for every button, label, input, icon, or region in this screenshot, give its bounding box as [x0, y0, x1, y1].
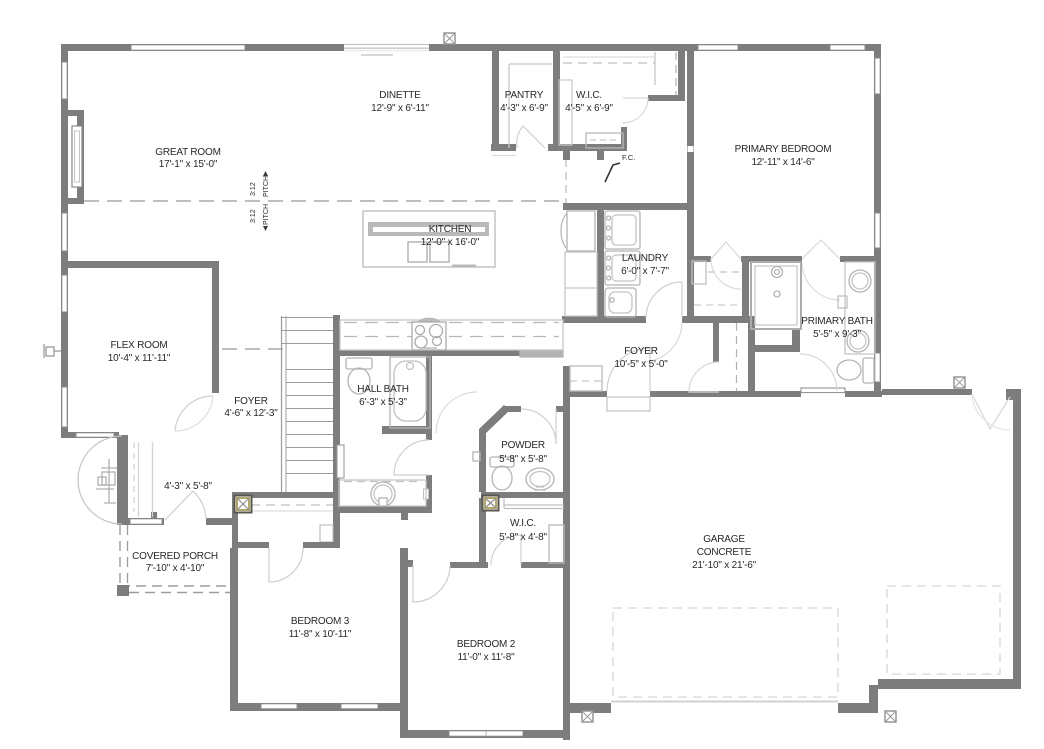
svg-text:10'-4" x 11'-11": 10'-4" x 11'-11" — [108, 353, 171, 364]
svg-text:4'-6" x 12'-3": 4'-6" x 12'-3" — [224, 408, 278, 419]
svg-text:12'-0" x 16'-0": 12'-0" x 16'-0" — [421, 237, 480, 248]
svg-text:10'-5" x 5'-0": 10'-5" x 5'-0" — [614, 359, 668, 370]
svg-text:PRIMARY BEDROOM: PRIMARY BEDROOM — [735, 144, 832, 155]
svg-text:F.C.: F.C. — [622, 153, 635, 162]
svg-text:W.I.C.: W.I.C. — [510, 518, 536, 529]
svg-text:PANTRY: PANTRY — [505, 90, 544, 101]
svg-text:W.I.C.: W.I.C. — [576, 90, 602, 101]
svg-text:KITCHEN: KITCHEN — [429, 224, 472, 235]
svg-text:CONCRETE: CONCRETE — [697, 547, 752, 558]
svg-text:4'-3" x 5'-8": 4'-3" x 5'-8" — [164, 481, 212, 492]
svg-text:17'-1" x 15'-0": 17'-1" x 15'-0" — [159, 159, 218, 170]
svg-text:PITCH: PITCH — [263, 204, 270, 225]
svg-text:FOYER: FOYER — [624, 346, 657, 357]
svg-text:POWDER: POWDER — [501, 440, 545, 451]
svg-text:6'-3" x 5'-3": 6'-3" x 5'-3" — [359, 397, 407, 408]
svg-text:5'-5" x 9'-3": 5'-5" x 9'-3" — [813, 329, 861, 340]
svg-text:5'-8" x 4'-8": 5'-8" x 4'-8" — [499, 532, 547, 543]
svg-text:3:12: 3:12 — [250, 209, 257, 223]
svg-text:11'-8" x 10'-11": 11'-8" x 10'-11" — [289, 629, 352, 640]
svg-text:5'-8" x 5'-8": 5'-8" x 5'-8" — [499, 454, 547, 465]
svg-text:4'-5" x 6'-9": 4'-5" x 6'-9" — [565, 103, 613, 114]
svg-text:12'-11" x 14'-6": 12'-11" x 14'-6" — [751, 157, 815, 168]
svg-text:7'-10" x 4'-10": 7'-10" x 4'-10" — [146, 563, 205, 574]
svg-text:21'-10" x 21'-6": 21'-10" x 21'-6" — [692, 560, 757, 571]
svg-text:HALL BATH: HALL BATH — [357, 384, 409, 395]
svg-text:BEDROOM 3: BEDROOM 3 — [291, 616, 350, 627]
svg-text:FOYER: FOYER — [234, 396, 267, 407]
svg-text:DINETTE: DINETTE — [379, 90, 421, 101]
svg-text:GREAT ROOM: GREAT ROOM — [155, 147, 220, 158]
svg-text:LAUNDRY: LAUNDRY — [622, 253, 669, 264]
svg-text:COVERED PORCH: COVERED PORCH — [132, 551, 218, 562]
svg-text:FLEX ROOM: FLEX ROOM — [110, 340, 167, 351]
svg-text:11'-0" x 11'-8": 11'-0" x 11'-8" — [457, 652, 515, 663]
svg-text:GARAGE: GARAGE — [703, 534, 745, 545]
svg-text:PRIMARY BATH: PRIMARY BATH — [801, 316, 873, 327]
svg-text:4'-3" x 6'-9": 4'-3" x 6'-9" — [500, 103, 548, 114]
svg-text:BEDROOM 2: BEDROOM 2 — [457, 639, 516, 650]
svg-text:PITCH: PITCH — [263, 176, 270, 197]
svg-text:6'-0" x 7'-7": 6'-0" x 7'-7" — [621, 266, 669, 277]
svg-text:3:12: 3:12 — [250, 182, 257, 196]
svg-text:12'-9" x 6'-11": 12'-9" x 6'-11" — [371, 103, 429, 114]
